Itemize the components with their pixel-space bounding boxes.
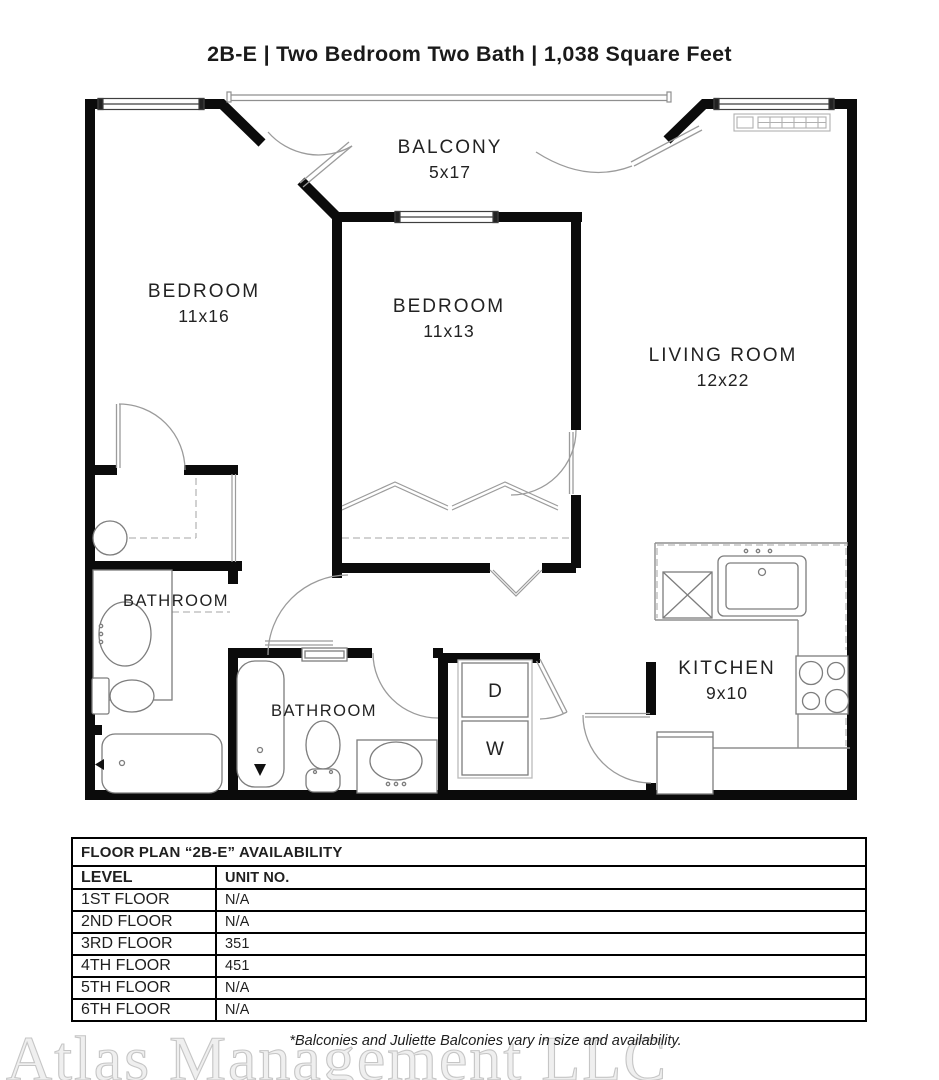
doors	[117, 126, 703, 783]
kitchen-entry-door	[583, 714, 651, 784]
column-header-unit: UNIT NO.	[217, 870, 289, 886]
bedroom-left-door	[117, 404, 186, 470]
unit-cell: 451	[217, 958, 250, 974]
stove-icon	[796, 656, 849, 714]
floor-plan-page: 2B-E | Two Bedroom Two Bath | 1,038 Squa…	[0, 0, 939, 1080]
hallway-door	[265, 575, 348, 655]
heater-icon	[734, 114, 830, 131]
floor-plan-drawing: BALCONY 5x17 BEDROOM 11x16 BEDROOM 11x13…	[0, 0, 939, 830]
bedroom-middle-door	[511, 430, 576, 495]
closet-doors	[342, 482, 558, 596]
washer-label: W	[486, 739, 504, 760]
mirror-icon	[302, 648, 347, 661]
balcony-disclaimer: *Balconies and Juliette Balconies vary i…	[289, 1033, 681, 1049]
table-row: 2ND FLOOR N/A	[73, 910, 865, 932]
unit-cell: N/A	[217, 914, 249, 930]
bedroom-closet-bifold	[342, 482, 558, 510]
unit-cell: N/A	[217, 1002, 249, 1018]
dryer-label: D	[488, 681, 502, 702]
living-room-window	[714, 99, 834, 110]
column-header-level: LEVEL	[73, 867, 217, 888]
bedroom-left-dims: 11x16	[178, 306, 229, 326]
bedroom-divider-wall	[301, 181, 582, 578]
bathtub-middle-icon	[237, 661, 284, 787]
unit-cell: N/A	[217, 980, 249, 996]
table-row: 4TH FLOOR 451	[73, 954, 865, 976]
balcony-railing	[227, 92, 671, 102]
closet-divider	[232, 474, 236, 562]
table-row: 1ST FLOOR N/A	[73, 888, 865, 910]
refrigerator-icon	[657, 732, 713, 794]
water-heater-icon	[93, 521, 127, 555]
bathroom-middle-label: BATHROOM	[271, 702, 377, 720]
sink-middle-icon	[357, 740, 437, 793]
management-watermark: Atlas Management LLC	[6, 1022, 668, 1080]
living-room-label: LIVING ROOM	[649, 345, 798, 366]
bathroom-middle-door	[373, 653, 438, 718]
toilet-left-icon	[92, 678, 154, 714]
laundry-door	[537, 659, 568, 719]
table-title: FLOOR PLAN “2B-E” AVAILABILITY	[73, 844, 343, 861]
table-row: 5TH FLOOR N/A	[73, 976, 865, 998]
dishwasher-icon	[663, 572, 712, 618]
bedroom-left-window	[98, 99, 204, 110]
balcony-left-door	[268, 132, 352, 187]
windows	[98, 99, 834, 223]
kitchen-dims: 9x10	[706, 683, 748, 703]
kitchen-sink-icon	[718, 549, 806, 616]
level-cell: 5TH FLOOR	[73, 978, 217, 998]
table-header-row: LEVEL UNIT NO.	[73, 865, 865, 888]
table-row: 6TH FLOOR N/A	[73, 998, 865, 1020]
kitchen-label: KITCHEN	[678, 658, 775, 679]
level-cell: 6TH FLOOR	[73, 1000, 217, 1020]
bathroom-left-label: BATHROOM	[123, 592, 229, 610]
washer-dryer-stack	[458, 660, 532, 778]
toilet-middle-icon	[306, 721, 340, 792]
unit-cell: N/A	[217, 892, 249, 908]
bedroom-middle-label: BEDROOM	[393, 296, 505, 317]
bathtub-left-icon	[95, 734, 222, 793]
balcony-dims: 5x17	[429, 162, 471, 182]
level-cell: 4TH FLOOR	[73, 956, 217, 976]
living-room-dims: 12x22	[697, 370, 750, 390]
availability-table: FLOOR PLAN “2B-E” AVAILABILITY LEVEL UNI…	[71, 837, 867, 1022]
level-cell: 1ST FLOOR	[73, 890, 217, 910]
bedroom-middle-dims: 11x13	[423, 321, 474, 341]
bedroom-middle-window	[395, 212, 498, 223]
bedroom-left-label: BEDROOM	[148, 281, 260, 302]
table-title-row: FLOOR PLAN “2B-E” AVAILABILITY	[73, 839, 865, 865]
level-cell: 3RD FLOOR	[73, 934, 217, 954]
table-row: 3RD FLOOR 351	[73, 932, 865, 954]
coat-closet-bifold	[490, 570, 542, 596]
level-cell: 2ND FLOOR	[73, 912, 217, 932]
unit-cell: 351	[217, 936, 250, 952]
balcony-label: BALCONY	[398, 137, 503, 158]
